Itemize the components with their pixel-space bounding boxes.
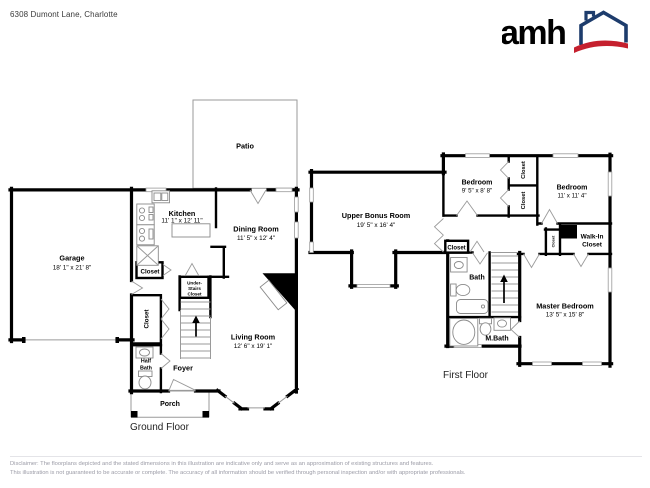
patio-door-swing bbox=[250, 190, 266, 204]
label-dining-room-dims: 11' 5" x 12' 4" bbox=[237, 235, 275, 242]
floorplan-drawing: Patio bbox=[0, 0, 650, 488]
label-fireplace: Fireplace bbox=[275, 277, 294, 282]
porch-post-left bbox=[131, 411, 138, 418]
half-bath-toilet-icon bbox=[139, 371, 153, 389]
stairs-up-arrow bbox=[192, 316, 200, 337]
label-upper-bonus-room-dims: 19' 5" x 16' 4" bbox=[357, 222, 396, 229]
label-under-stairs-1: Under- bbox=[187, 281, 202, 286]
garage-door-stop-left bbox=[22, 337, 26, 343]
master-sink-icon bbox=[494, 318, 511, 331]
label-garage: Garage bbox=[59, 254, 84, 263]
garage-entry-door-swing bbox=[132, 281, 143, 295]
label-half-bath-2: Bath bbox=[140, 366, 152, 372]
half-bath-sink-icon bbox=[136, 347, 153, 358]
label-under-stairs-3: Closet bbox=[187, 292, 202, 297]
window bbox=[295, 197, 299, 212]
kitchen-island bbox=[172, 224, 210, 237]
label-living-room: Living Room bbox=[231, 333, 276, 342]
label-walk-in-1: Walk-In bbox=[581, 234, 604, 241]
label-master-bedroom: Master Bedroom bbox=[536, 302, 594, 311]
closet-bifold-door bbox=[161, 299, 169, 319]
kitchen-sink-icon bbox=[152, 191, 170, 203]
closet-door-swing bbox=[501, 190, 509, 207]
label-living-room-dims: 12' 6" x 19' 1" bbox=[234, 343, 273, 350]
label-master-bedroom-dims: 13' 5" x 15' 8" bbox=[546, 312, 585, 319]
label-garage-dims: 18' 1" x 21' 8" bbox=[53, 265, 92, 272]
floorplan-page: 6308 Dumont Lane, Charlotte amh Patio bbox=[0, 0, 650, 488]
disclaimer-line-2: This illustration is not guaranteed to b… bbox=[10, 469, 642, 478]
label-m-bath: M.Bath bbox=[485, 336, 508, 343]
window bbox=[533, 362, 552, 366]
label-porch: Porch bbox=[160, 401, 180, 408]
half-bath-door-swing bbox=[161, 354, 170, 369]
label-hall-closet: Closet bbox=[447, 246, 465, 252]
closet-door-swing bbox=[501, 162, 509, 179]
label-foyer: Foyer bbox=[173, 364, 193, 373]
bath-sink-icon bbox=[451, 258, 468, 273]
porch-post-right bbox=[203, 411, 210, 418]
window bbox=[357, 284, 390, 287]
label-bedroom-2-dims: 11' x 11' 4" bbox=[557, 193, 586, 200]
window bbox=[553, 154, 578, 158]
bedroom2-door-swing bbox=[542, 210, 558, 224]
walk-in-door-swing bbox=[574, 254, 589, 267]
window bbox=[608, 268, 612, 292]
closet-bifold-door bbox=[163, 265, 171, 276]
label-bedroom-2: Bedroom bbox=[557, 185, 588, 192]
disclaimer-line-1: Disclaimer: The floorplans depicted and … bbox=[10, 460, 642, 469]
front-door-swing bbox=[169, 380, 196, 391]
label-closet-small: Closet bbox=[552, 235, 556, 247]
label-under-stairs-2: Stairs bbox=[188, 286, 201, 291]
label-upper-bonus-room: Upper Bonus Room bbox=[342, 211, 411, 220]
label-bedroom-1: Bedroom bbox=[462, 180, 493, 187]
label-bath: Bath bbox=[469, 275, 485, 282]
master-toilet-icon bbox=[480, 318, 492, 335]
label-bedroom-1-dims: 9' 5" x 8' 8" bbox=[462, 188, 493, 195]
label-closet-vertical: Closet bbox=[521, 192, 527, 210]
bath-toilet-icon bbox=[451, 284, 470, 296]
ground-floor-plan: Patio bbox=[10, 100, 298, 433]
bedroom1-door-swing bbox=[457, 201, 478, 216]
master-bath-door-swing bbox=[511, 321, 520, 338]
label-closet: Closet bbox=[141, 269, 160, 276]
first-floor-title: First Floor bbox=[443, 370, 489, 381]
label-patio: Patio bbox=[236, 142, 254, 151]
master-bathtub-icon bbox=[450, 319, 478, 347]
bathtub-icon bbox=[457, 300, 489, 314]
window bbox=[276, 188, 292, 192]
closet-bifold-door bbox=[161, 319, 169, 339]
window bbox=[310, 188, 314, 202]
stairs-up-arrow bbox=[500, 275, 508, 304]
window bbox=[466, 154, 490, 158]
hall-closet-door-swing bbox=[470, 241, 484, 252]
stove-icon bbox=[137, 204, 154, 245]
label-closet-vertical: Closet bbox=[521, 161, 527, 179]
window bbox=[295, 222, 299, 238]
refrigerator-icon bbox=[137, 246, 159, 265]
window bbox=[583, 362, 602, 366]
master-door-swing bbox=[524, 254, 540, 268]
ground-staircase bbox=[181, 302, 211, 359]
under-stairs-door-swing bbox=[185, 264, 199, 277]
label-walk-in-2: Closet bbox=[582, 242, 603, 249]
ground-floor-title: Ground Floor bbox=[130, 422, 190, 433]
label-half-bath-1: Half bbox=[141, 359, 151, 365]
label-closet-vertical: Closet bbox=[144, 310, 151, 329]
first-staircase bbox=[491, 253, 518, 313]
disclaimer: Disclaimer: The floorplans depicted and … bbox=[10, 456, 642, 477]
bath-door-swing bbox=[473, 253, 488, 264]
fireplace: Fireplace bbox=[260, 273, 296, 311]
bonus-room-door-swing bbox=[435, 235, 444, 252]
walk-in-closet-chase bbox=[560, 225, 577, 239]
label-kitchen-dims: 11' 1" x 12' 11" bbox=[161, 218, 202, 225]
window bbox=[608, 172, 612, 196]
bonus-room-door-swing bbox=[435, 219, 444, 236]
window bbox=[310, 242, 314, 253]
first-floor-plan: Upper Bonus Room 19' 5" x 16' 4" Bedroom… bbox=[310, 154, 612, 381]
garage-door-stop-right bbox=[116, 337, 120, 343]
label-dining-room: Dining Room bbox=[233, 225, 279, 234]
